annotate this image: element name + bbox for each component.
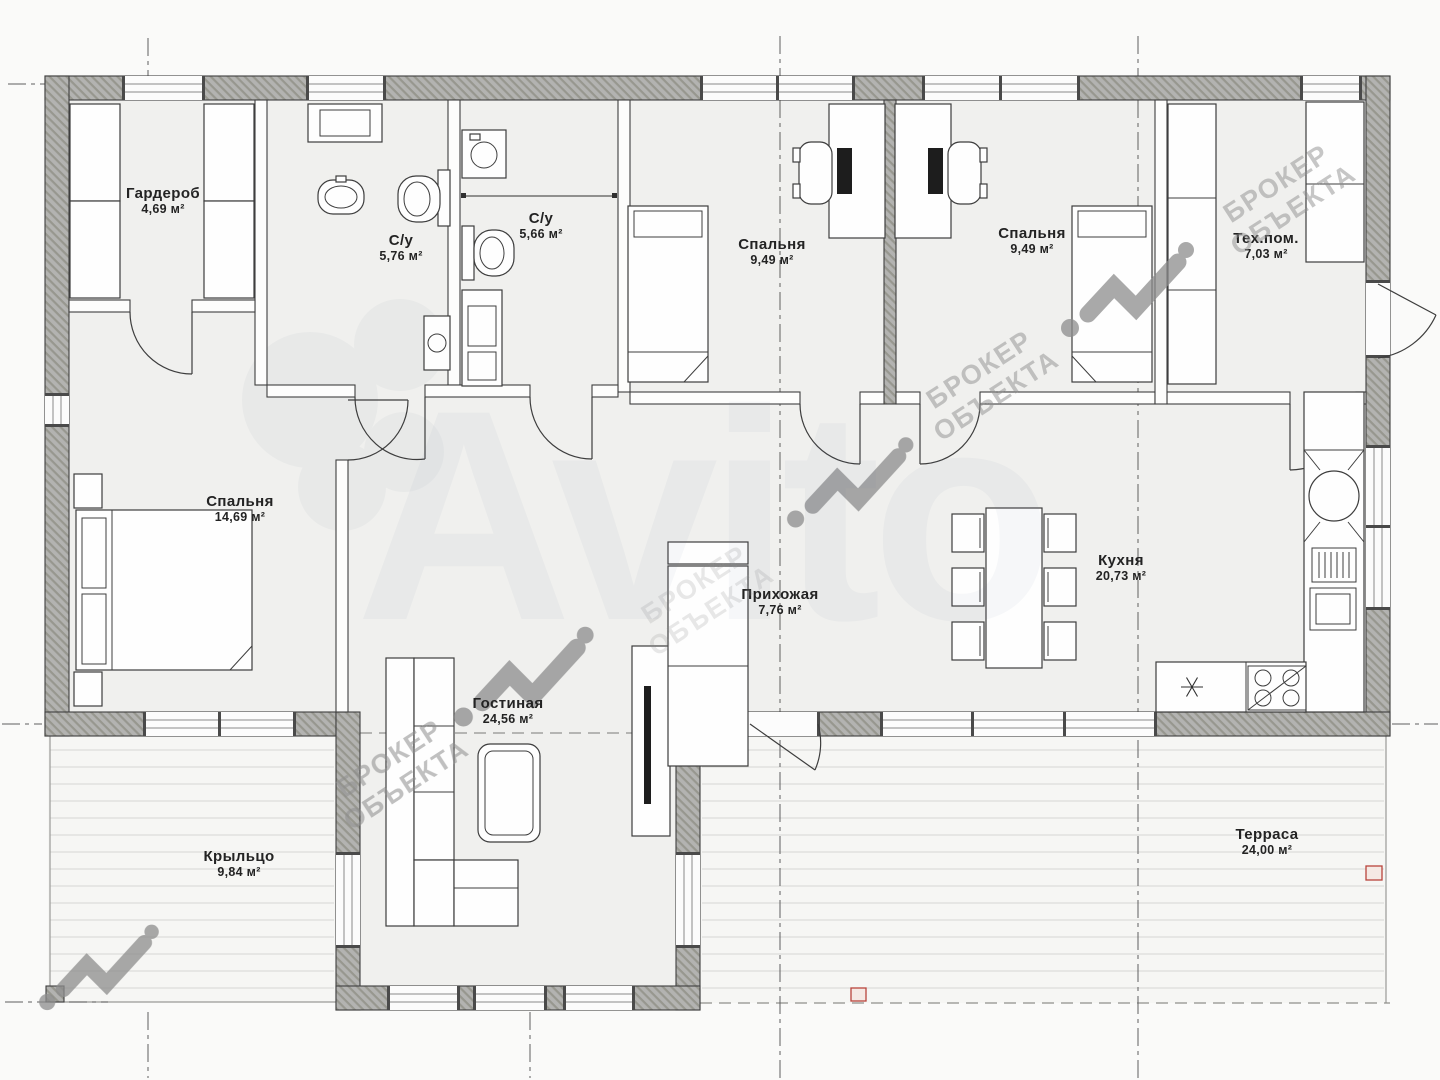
room-label-porch: Крыльцо 9,84 м² <box>203 848 274 880</box>
room-label-terrace: Терраса 24,00 м² <box>1235 826 1298 858</box>
room-label-bedroom-main: Спальня 14,69 м² <box>206 493 274 525</box>
room-label-bedroom-2: Спальня 9,49 м² <box>998 225 1066 257</box>
room-label-bedroom-1: Спальня 9,49 м² <box>738 236 806 268</box>
room-label-kitchen: Кухня 20,73 м² <box>1096 552 1147 584</box>
floor-plan-page: Гардероб 4,69 м² С/у 5,76 м² С/у 5,66 м²… <box>0 0 1440 1080</box>
room-label-bathroom-1: С/у 5,76 м² <box>379 232 422 264</box>
room-label-bathroom-2: С/у 5,66 м² <box>519 210 562 242</box>
room-label-wardrobe: Гардероб 4,69 м² <box>126 185 200 217</box>
room-label-living-room: Гостиная 24,56 м² <box>473 695 544 727</box>
